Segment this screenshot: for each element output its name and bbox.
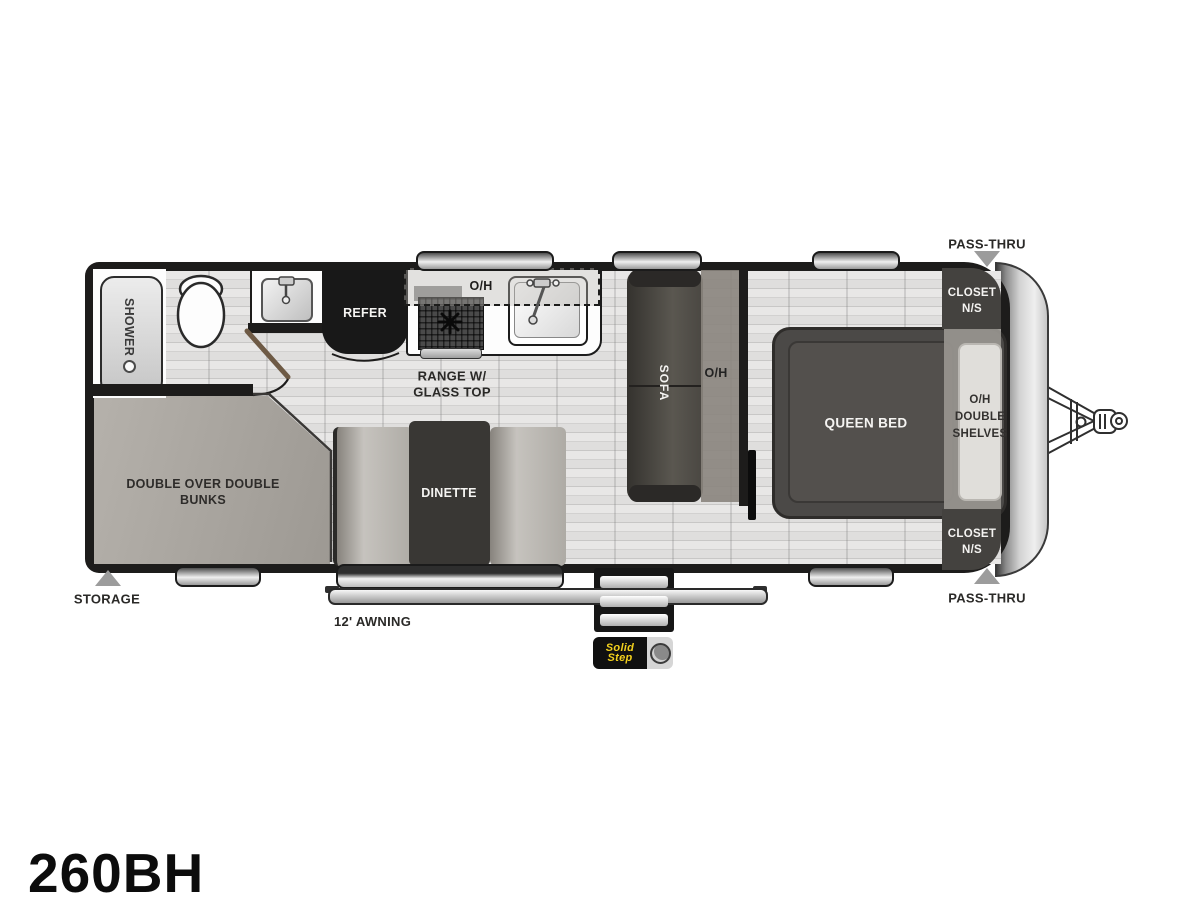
window xyxy=(808,566,894,587)
bathroom-sink-bowl xyxy=(261,278,313,322)
sofa-overhead-cabinet xyxy=(701,270,744,502)
solid-step-badge: Solid Step xyxy=(593,637,647,669)
closet-bottom-label-line2: N/S xyxy=(962,544,982,556)
window xyxy=(175,566,261,587)
bathroom-wall xyxy=(90,384,253,396)
kitchen-overhead-label: O/H xyxy=(469,279,492,293)
closet-top-label-line2: N/S xyxy=(962,303,982,315)
step-tread xyxy=(600,614,668,626)
solid-step-line2: Step xyxy=(607,653,632,663)
shelves-label-line3: SHELVES xyxy=(953,428,1008,440)
awning-rail xyxy=(328,588,768,605)
step-tread xyxy=(600,596,668,607)
window xyxy=(612,251,702,271)
sofa-overhead-label: O/H xyxy=(704,366,727,380)
range-label-line2: GLASS TOP xyxy=(413,385,491,400)
bunks-label-line1: DOUBLE OVER DOUBLE xyxy=(126,477,279,491)
closet-top-label-line1: CLOSET xyxy=(948,287,996,299)
step-tread xyxy=(600,576,668,588)
sofa-label: SOFA xyxy=(657,365,671,402)
wall-segment xyxy=(248,323,324,333)
dinette-bench-left xyxy=(333,427,413,566)
shelves-label-line1: O/H xyxy=(969,394,990,406)
window xyxy=(416,251,554,271)
closet-bottom-label-line1: CLOSET xyxy=(948,528,996,540)
entry-door-window xyxy=(336,564,564,589)
kitchen-overhead-cabinet xyxy=(404,268,600,306)
window xyxy=(812,251,900,271)
pass-thru-arrow-down-icon xyxy=(974,251,1000,267)
pass-thru-label-top: PASS-THRU xyxy=(948,237,1026,252)
dinette-bench-right xyxy=(490,427,566,566)
storage-label: STORAGE xyxy=(74,592,140,607)
range-label-line1: RANGE W/ xyxy=(418,369,487,384)
lci-badge xyxy=(647,637,673,669)
pass-thru-label-bottom: PASS-THRU xyxy=(948,591,1026,606)
bunks-label-line2: BUNKS xyxy=(180,493,226,507)
sofa-armrest xyxy=(629,270,701,287)
storage-arrow-up-icon xyxy=(95,570,121,586)
awning-label: 12' AWNING xyxy=(334,614,411,629)
lci-logo-icon xyxy=(650,643,671,664)
range-vent xyxy=(420,348,482,359)
pass-thru-arrow-up-icon xyxy=(974,568,1000,584)
queen-bed-label: QUEEN BED xyxy=(825,416,908,431)
tv-location xyxy=(748,450,756,520)
shower-drain-icon xyxy=(123,360,136,373)
shelves-label-line2: DOUBLE xyxy=(955,411,1005,423)
shower-label: SHOWER xyxy=(122,298,136,356)
model-number: 260BH xyxy=(28,841,204,900)
sofa-armrest xyxy=(629,485,701,502)
dinette-label: DINETTE xyxy=(421,486,477,500)
refer-label: REFER xyxy=(343,306,387,320)
floorplan-canvas: Solid Step SHOWER REFER O/H RANGE W/ GLA… xyxy=(0,0,1200,900)
bedroom-wall xyxy=(739,270,748,506)
